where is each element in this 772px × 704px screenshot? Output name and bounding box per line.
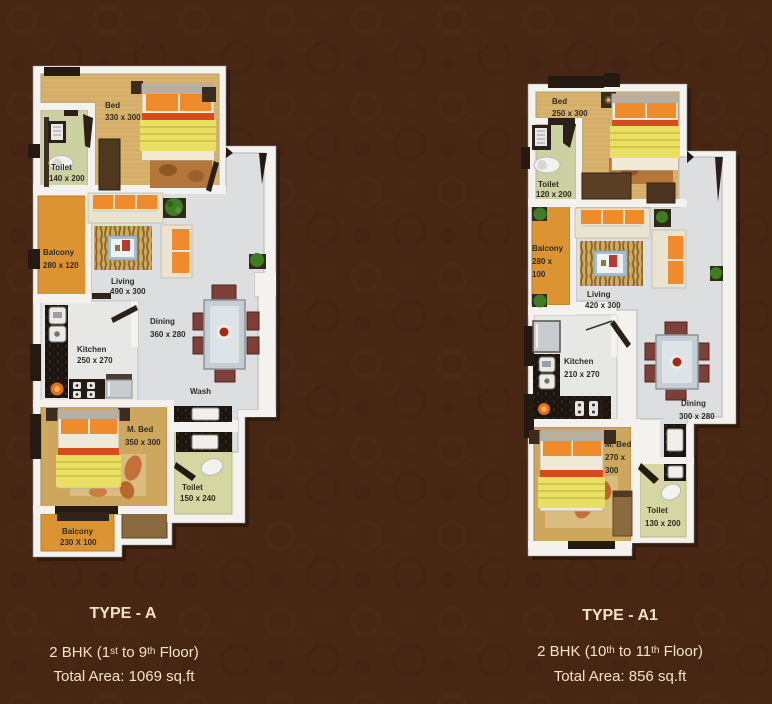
svg-text:250 x 270: 250 x 270 [77, 356, 113, 365]
svg-text:Living: Living [111, 277, 135, 286]
svg-text:Toilet: Toilet [647, 506, 668, 515]
svg-text:120 x 200: 120 x 200 [536, 190, 572, 199]
svg-text:TYPE - A1: TYPE - A1 [582, 607, 658, 624]
svg-text:Living: Living [587, 290, 611, 299]
svg-text:420 x 300: 420 x 300 [585, 301, 621, 310]
svg-text:150 x 240: 150 x 240 [180, 494, 216, 503]
svg-text:Dining: Dining [681, 399, 706, 408]
svg-text:Dining: Dining [150, 317, 175, 326]
svg-text:Balcony: Balcony [43, 248, 75, 257]
svg-text:Total Area: 856 sq.ft: Total Area: 856 sq.ft [554, 668, 687, 685]
svg-text:490 x 300: 490 x 300 [110, 287, 146, 296]
svg-text:130 x 200: 130 x 200 [645, 519, 681, 528]
svg-text:Toilet: Toilet [182, 483, 203, 492]
svg-text:2 BHK (10th to 11th Floor): 2 BHK (10th to 11th Floor) [537, 643, 703, 660]
svg-text:M. Bed: M. Bed [127, 425, 153, 434]
svg-text:Balcony: Balcony [62, 527, 94, 536]
svg-text:280 x: 280 x [532, 257, 553, 266]
svg-text:210 x 270: 210 x 270 [564, 370, 600, 379]
svg-text:300: 300 [605, 466, 619, 475]
svg-text:Bed: Bed [105, 101, 120, 110]
svg-text:Kitchen: Kitchen [77, 345, 106, 354]
svg-text:M. Bed: M. Bed [605, 440, 631, 449]
svg-text:270 x: 270 x [605, 453, 626, 462]
svg-text:100: 100 [532, 270, 546, 279]
svg-text:Kitchen: Kitchen [564, 357, 593, 366]
svg-text:330 x 300: 330 x 300 [105, 113, 141, 122]
svg-text:Total Area: 1069 sq.ft: Total Area: 1069 sq.ft [54, 668, 196, 685]
svg-text:350 x 300: 350 x 300 [125, 438, 161, 447]
svg-text:360 x 280: 360 x 280 [150, 330, 186, 339]
svg-text:Toilet: Toilet [51, 163, 72, 172]
svg-text:140 x 200: 140 x 200 [49, 174, 85, 183]
svg-text:Bed: Bed [552, 97, 567, 106]
svg-text:Balcony: Balcony [532, 244, 564, 253]
svg-text:250 x 300: 250 x 300 [552, 109, 588, 118]
svg-text:Toilet: Toilet [538, 180, 559, 189]
svg-text:TYPE - A: TYPE - A [90, 605, 157, 622]
svg-text:230 X 100: 230 X 100 [60, 538, 97, 547]
svg-text:300 x 280: 300 x 280 [679, 412, 715, 421]
svg-text:2 BHK (1st to 9th Floor): 2 BHK (1st to 9th Floor) [49, 644, 199, 661]
svg-text:Wash: Wash [190, 387, 211, 396]
svg-text:280 x 120: 280 x 120 [43, 261, 79, 270]
